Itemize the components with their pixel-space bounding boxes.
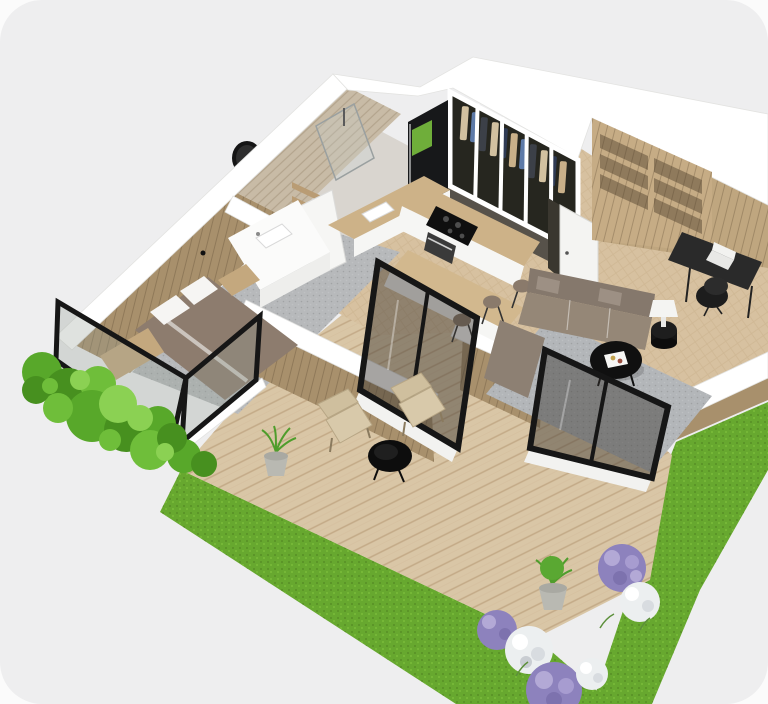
lavender-white — [576, 658, 608, 690]
wall-sconce — [201, 251, 206, 256]
faucet — [256, 232, 260, 236]
render-canvas — [0, 0, 768, 704]
lavender-white — [620, 582, 660, 622]
floorplan-3d-viewport[interactable] — [0, 0, 768, 704]
door-handle — [565, 251, 569, 255]
doorway-gap — [548, 198, 560, 278]
lamp-shade — [649, 300, 678, 317]
